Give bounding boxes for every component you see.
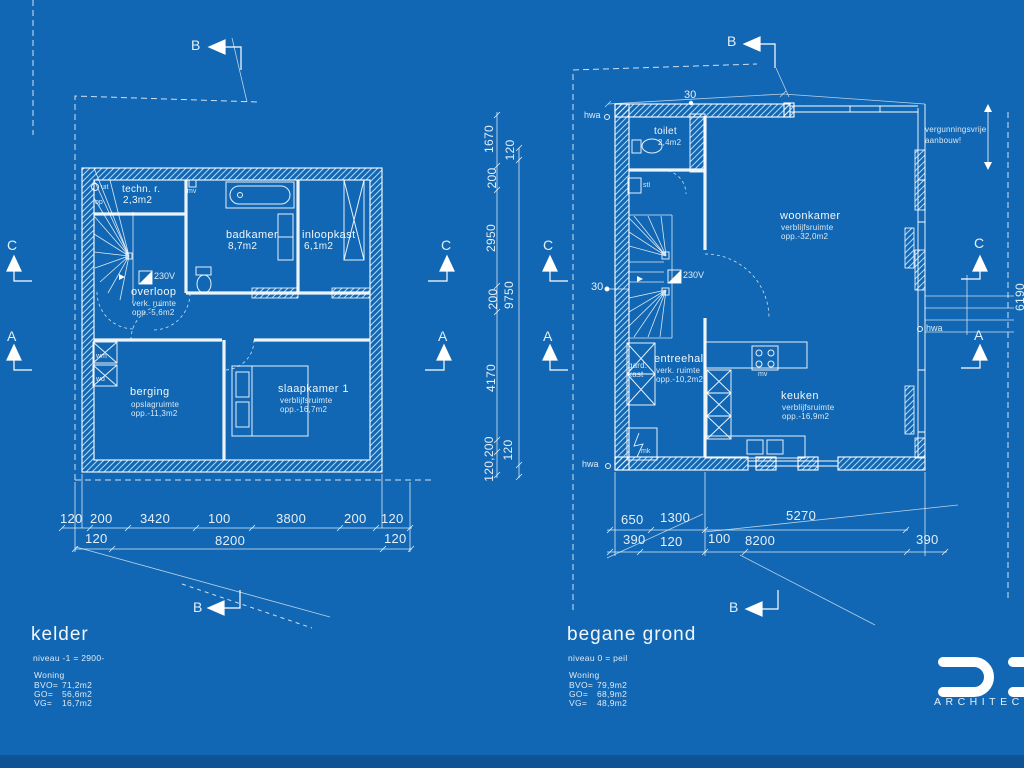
kelder-vdim-3: 200 (487, 289, 499, 310)
kelder-mv-label: mv (187, 188, 196, 195)
kelder-dim-r2-2: 120 (384, 532, 407, 545)
kelder-dim-r2-1: 8200 (215, 534, 245, 547)
bg-plot-boundary (573, 64, 1008, 610)
section-letter-a-right-of-bg: A (974, 328, 983, 342)
bg-dim-r1-0: 650 (621, 513, 644, 526)
kelder-room-overloop-type: verk. ruimte (132, 300, 176, 308)
bg-power-label: 230V (683, 271, 704, 280)
bg-dim-r2-4: 390 (916, 533, 939, 546)
bg-room-woonkamer-area: opp.-32,0m2 (781, 233, 828, 241)
architect-logo-text: ARCHITEC (934, 697, 1024, 708)
bg-gard-label: gard. (628, 362, 647, 370)
kelder-vdim-2: 2950 (485, 224, 497, 252)
section-arrow-a-right-of-bg (961, 345, 987, 368)
bg-hwa-label-top: hwa (584, 111, 601, 120)
section-letter-a-right-of-kelder: A (438, 329, 447, 343)
bg-room-toilet-name: toilet (654, 127, 677, 137)
kelder-vdim-1: 200 (486, 168, 498, 189)
bg-room-keuken-name: keuken (781, 391, 819, 402)
section-letter-b-bottom-right: B (729, 600, 738, 614)
bg-dim-r1-1: 1300 (660, 511, 690, 524)
kelder-dim-r1-3: 100 (208, 512, 231, 525)
bg-walls (615, 103, 925, 470)
section-letter-b-top-left: B (191, 38, 200, 52)
bg-stat-vg-val: 48,9m2 (597, 699, 627, 708)
bg-mv-label: mv (758, 371, 767, 378)
section-arrow-a-left (7, 345, 32, 370)
section-letter-c-right-of-kelder: C (441, 238, 451, 252)
kelder-stats-heading: Woning (34, 671, 64, 680)
bg-stats-heading: Woning (569, 671, 599, 680)
kelder-vdim-4: 4170 (485, 364, 497, 392)
kelder-room-badkamer-name: badkamer (226, 230, 278, 241)
bg-room-entreehal-type: verk. ruimte (656, 367, 700, 375)
section-letter-b-top-right: B (727, 34, 736, 48)
kelder-room-inloopkast-name: inloopkast (302, 230, 356, 241)
section-letter-a-left-of-bg: A (543, 329, 552, 343)
section-letter-c-left-of-bg: C (543, 238, 553, 252)
bg-hwa-label-right: hwa (926, 324, 943, 333)
kelder-vdim-5: 120,200 (483, 436, 495, 481)
kelder-dim-r1-6: 120 (381, 512, 404, 525)
kelder-dim-r1-1: 200 (90, 512, 113, 525)
bg-radiators (905, 228, 914, 434)
kitchen-counter-top-icon (705, 342, 807, 370)
bg-annex-note-line1: vergunningsvrije (925, 126, 986, 134)
kelder-room-berging-name: berging (130, 387, 170, 398)
power-box-icon-bg (668, 270, 681, 283)
kelder-dim-r1-5: 200 (344, 512, 367, 525)
kitchen-cabinets-icon (707, 370, 731, 439)
kelder-room-overloop-area: opp.-5,6m2 (132, 309, 174, 317)
bg-annex-arrow (984, 104, 992, 170)
kelder-vdim-outer-1: 9750 (503, 281, 515, 309)
bg-offset-dim-left: 30 (591, 282, 603, 293)
kelder-vdim-outer-0: 120 (504, 140, 516, 161)
blueprint-linework (0, 0, 1024, 768)
kelder-power-label: 230V (154, 272, 175, 281)
kelder-vdim-0: 1670 (483, 125, 495, 153)
section-arrow-c-left (7, 256, 32, 281)
kelder-title: kelder (31, 625, 89, 644)
section-letter-c-right-of-bg: C (974, 236, 984, 250)
kelder-dim-r1-4: 3800 (276, 512, 306, 525)
bg-annex-note-line2: aanbouw! (925, 137, 961, 145)
kelder-room-badkamer-area: 8,7m2 (228, 242, 257, 252)
section-letter-a-left: A (7, 329, 16, 343)
section-arrow-c-right-of-kelder (428, 256, 454, 281)
bg-mk-label: mk (641, 448, 650, 455)
kelder-room-slaapkamer-name: slaapkamer 1 (278, 384, 349, 395)
blueprint-canvas: techn. r. 2,3m2 badkamer 8,7m2 inloopkas… (0, 0, 1024, 768)
kelder-vdim-outer-2: 120 (502, 440, 514, 461)
kelder-stat-vg-key: VG= (34, 699, 52, 708)
bg-stat-vg-key: VG= (569, 699, 587, 708)
bg-offset-dim-top: 30 (684, 90, 696, 101)
stl-closet-icon (628, 178, 641, 193)
section-letter-c-left: C (7, 238, 17, 252)
bg-dim-r2-2: 100 (708, 532, 731, 545)
kelder-washer-label: wm (96, 353, 107, 360)
kelder-room-slaapkamer-area: opp.-16,7m2 (280, 406, 327, 414)
bg-stairs (629, 215, 672, 338)
footer-band (0, 755, 1024, 768)
bg-level-note: niveau 0 = peil (568, 654, 628, 663)
bg-dim-r2-3: 8200 (745, 534, 775, 547)
kelder-room-inloopkast-area: 6,1m2 (304, 242, 333, 252)
bg-room-woonkamer-type: verblijfsruimte (781, 224, 833, 232)
bg-room-woonkamer-name: woonkamer (780, 211, 840, 222)
bg-dim-r1-2: 5270 (786, 509, 816, 522)
section-letter-b-bottom-left: B (193, 600, 202, 614)
architect-logo-icon (943, 662, 1024, 692)
bg-room-entreehal-name: entreehal (654, 354, 703, 365)
kelder-room-techn-area: 2,3m2 (123, 196, 152, 206)
kelder-room-berging-type: opslagruimte (131, 401, 179, 409)
bg-kast-label: kast (628, 371, 643, 379)
kelder-dryer-label: wd (96, 376, 105, 383)
section-arrow-c-left-of-bg (543, 256, 568, 281)
kelder-level-note: niveau -1 = 2900- (33, 654, 105, 663)
kelder-dim-r1-2: 3420 (140, 512, 170, 525)
kelder-stat-vg-val: 16,7m2 (62, 699, 92, 708)
meter-cupboard-icon (627, 428, 657, 460)
kelder-room-slaapkamer-type: verblijfsruimte (280, 397, 332, 405)
bg-doors (662, 170, 769, 318)
bg-dim-r2-0: 390 (623, 533, 646, 546)
kelder-room-berging-area: opp.-11,3m2 (131, 410, 178, 418)
kelder-room-overloop-name: overloop (131, 287, 176, 298)
bg-dim-r2-1: 120 (660, 535, 683, 548)
section-arrow-a-right-of-kelder (425, 345, 451, 370)
section-arrow-b-top-right (744, 37, 775, 68)
section-arrow-a-left-of-bg (543, 345, 568, 370)
bg-room-keuken-type: verblijfsruimte (782, 404, 834, 412)
kelder-dim-r1-0: 120 (60, 512, 83, 525)
kelder-uit-label: uit (101, 184, 108, 191)
bg-room-entreehal-area: opp.-10,2m2 (656, 376, 703, 384)
kelder-room-techn-name: techn. r. (122, 185, 160, 195)
kelder-op-label: op (95, 199, 103, 206)
bg-room-keuken-area: opp.-16,9m2 (782, 413, 829, 421)
bg-toilet-wall (690, 114, 705, 172)
bg-vdim-right: 6190 (1014, 283, 1024, 311)
section-arrow-b-bottom-right (746, 590, 778, 616)
section-arrow-c-right-of-bg (961, 256, 987, 279)
bg-stl-label: stl (643, 182, 650, 189)
kelder-dim-r2-0: 120 (85, 532, 108, 545)
bg-hwa-label-bottom: hwa (582, 460, 599, 469)
bg-title: begane grond (567, 625, 696, 644)
bg-dimension-lines (607, 472, 948, 556)
bg-room-toilet-area: 2,4m2 (658, 139, 681, 147)
